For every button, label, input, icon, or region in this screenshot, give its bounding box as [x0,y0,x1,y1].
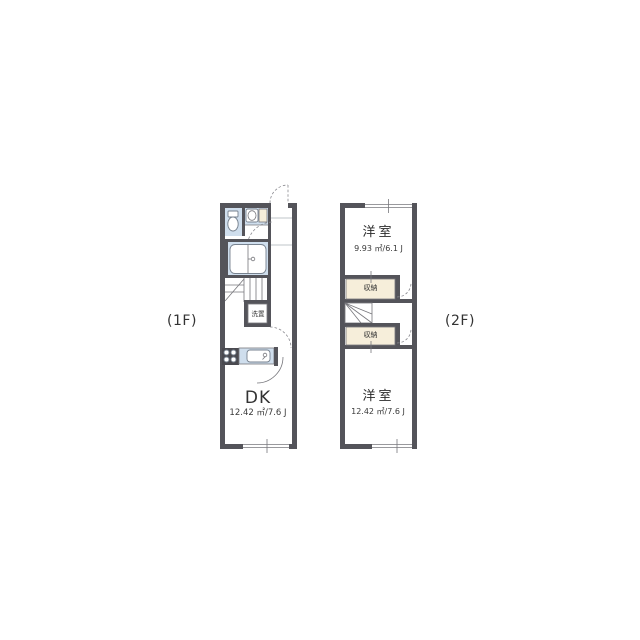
stove-icon [222,348,239,365]
bathtub-icon [230,245,266,274]
toilet-room [225,208,245,236]
floorplan-2f [335,175,435,460]
kitchen-sink-icon [239,348,274,364]
room-label-dk: DK [220,389,296,408]
washbasin-icon [246,209,258,222]
floor-label-1f: (1F) [158,314,206,329]
kitchen [222,347,278,366]
room-area-dk: 12.42 ㎡/7.6 J [214,409,302,418]
entry-door-arc [270,185,288,210]
closet-lower-label: 収納 [346,332,395,340]
room-label-bedroom-lower: 洋室 [340,390,417,404]
counter-end-panel [274,347,278,366]
toilet-icon [228,211,238,231]
floor-label-2f: (2F) [436,314,484,329]
floorplan-page: (1F) (2F) 洗置 DK 12.42 ㎡/7.6 J 洋室 9.93 ㎡/… [0,0,640,640]
room-label-bedroom-upper: 洋室 [340,226,417,240]
cabinet-icon [259,209,267,222]
room-area-bedroom-lower: 12.42 ㎡/7.6 J [334,408,422,417]
bathroom [225,239,271,278]
room-area-bedroom-upper: 9.93 ㎡/6.1 J [340,245,417,254]
closet-upper-label: 収納 [346,285,395,293]
laundry-label: 洗置 [247,311,269,318]
